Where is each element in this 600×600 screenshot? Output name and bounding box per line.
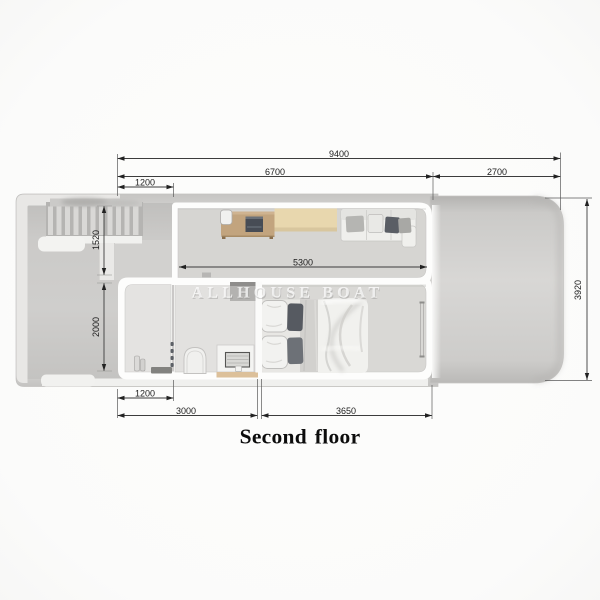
svg-text:1200: 1200 [135, 388, 155, 398]
svg-text:3920: 3920 [573, 280, 583, 300]
svg-text:9400: 9400 [329, 149, 349, 159]
svg-text:1200: 1200 [135, 177, 155, 187]
svg-text:2700: 2700 [487, 167, 507, 177]
svg-text:Second floor: Second floor [240, 425, 361, 449]
svg-text:2000: 2000 [91, 317, 101, 337]
svg-text:3650: 3650 [336, 406, 356, 416]
svg-text:3000: 3000 [176, 406, 196, 416]
svg-text:6700: 6700 [265, 167, 285, 177]
svg-text:1520: 1520 [91, 230, 101, 250]
svg-text:ALLHOUSE BOAT: ALLHOUSE BOAT [192, 285, 384, 302]
svg-text:5300: 5300 [293, 257, 313, 267]
